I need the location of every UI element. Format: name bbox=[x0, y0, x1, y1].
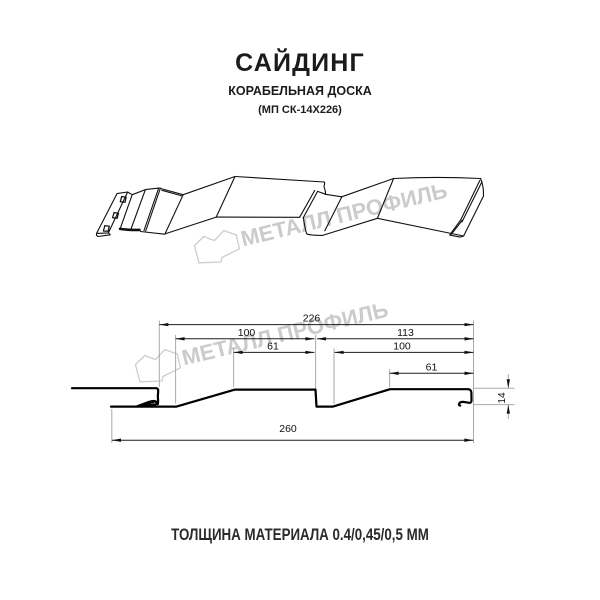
svg-text:260: 260 bbox=[279, 423, 297, 435]
svg-text:100: 100 bbox=[238, 327, 256, 339]
svg-text:14: 14 bbox=[497, 392, 508, 404]
svg-text:226: 226 bbox=[303, 313, 321, 325]
svg-text:МЕТАЛЛ ПРОФИЛЬ: МЕТАЛЛ ПРОФИЛЬ bbox=[238, 178, 450, 252]
svg-text:61: 61 bbox=[426, 361, 438, 373]
svg-text:100: 100 bbox=[393, 340, 411, 352]
svg-text:113: 113 bbox=[397, 327, 414, 339]
svg-text:61: 61 bbox=[267, 340, 279, 352]
svg-text:МЕТАЛЛ ПРОФИЛЬ: МЕТАЛЛ ПРОФИЛЬ bbox=[179, 297, 391, 371]
